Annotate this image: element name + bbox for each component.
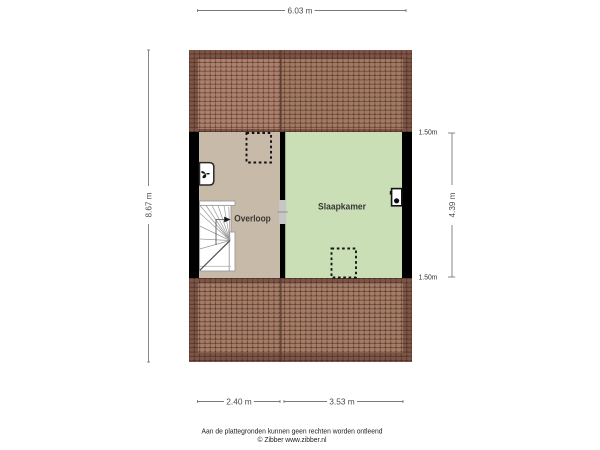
svg-text:1.50m: 1.50m — [419, 127, 438, 136]
svg-text:Slaapkamer: Slaapkamer — [318, 202, 366, 213]
svg-text:4.39 m: 4.39 m — [448, 192, 457, 217]
svg-text:Overloop: Overloop — [234, 213, 271, 224]
svg-text:3.53 m: 3.53 m — [329, 398, 355, 407]
svg-text:6.03 m: 6.03 m — [288, 6, 313, 15]
svg-text:2.40 m: 2.40 m — [226, 398, 252, 407]
svg-text:1.50m: 1.50m — [419, 272, 438, 281]
svg-text:8.67 m: 8.67 m — [144, 192, 153, 217]
svg-text:© Zibber www.zibber.nl: © Zibber www.zibber.nl — [258, 435, 327, 444]
